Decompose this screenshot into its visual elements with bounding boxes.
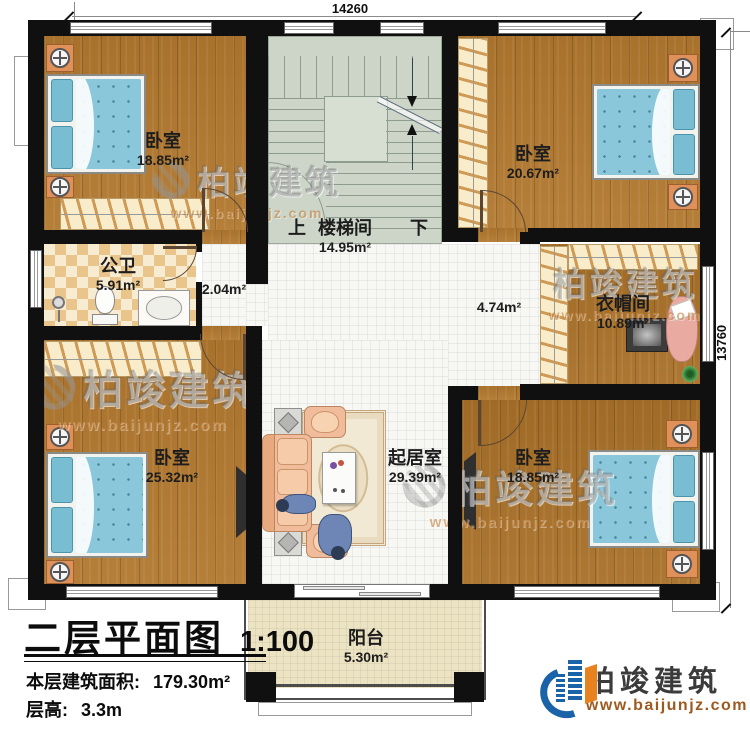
wall-bedroom-tr-bottom-a xyxy=(458,228,478,242)
floor-height-value: 3.3m xyxy=(81,700,122,720)
room-label-stair: 楼梯间 14.95m² xyxy=(300,218,390,256)
room-area: 25.32m² xyxy=(146,469,198,486)
room-label-balcony: 阳台 5.30m² xyxy=(330,628,402,666)
lamp-icon xyxy=(50,562,70,582)
window-bottom-bedroom-bl xyxy=(66,586,218,598)
nightstand xyxy=(46,424,74,450)
bathroom-vanity xyxy=(138,290,190,326)
room-name: 阳台 xyxy=(348,628,384,649)
room-area: 18.85m² xyxy=(507,469,559,486)
wall-hall-stub xyxy=(246,232,268,284)
lamp-icon xyxy=(50,427,70,447)
window-top-bedroom-tl xyxy=(70,22,212,34)
floor-area-value: 179.30m² xyxy=(153,672,230,692)
balcony-post-left xyxy=(246,672,276,702)
floor-plan: 14260 13760 xyxy=(0,0,750,735)
flower-decor xyxy=(341,489,345,493)
window-top-stair-2 xyxy=(380,22,424,34)
stair-label-down: 下 xyxy=(410,218,428,239)
lamp-icon xyxy=(673,58,693,78)
nightstand xyxy=(668,54,698,82)
room-name: 卧室 xyxy=(154,448,190,469)
room-area: 29.39m² xyxy=(389,469,441,486)
pillows xyxy=(51,457,73,553)
wall-cloak-bottom-b xyxy=(530,384,716,400)
room-label-bedroom-bl: 卧室 25.32m² xyxy=(122,448,222,486)
flower-decor xyxy=(333,488,337,492)
extension-line-top-right xyxy=(730,31,750,32)
shower-stem xyxy=(58,310,60,322)
room-label-bathroom: 公卫 5.91m² xyxy=(86,256,150,294)
room-name: 公卫 xyxy=(100,256,136,277)
room-area: 20.67m² xyxy=(507,165,559,182)
armchair xyxy=(304,406,346,438)
wall-bedroom-bl-right xyxy=(246,326,262,584)
wall-bedroom-br-top xyxy=(448,386,478,400)
nightstand xyxy=(666,420,698,448)
wall-exterior-left xyxy=(28,20,44,600)
logo-building-orange xyxy=(585,664,597,704)
room-name: 衣帽间 xyxy=(596,294,650,315)
dimension-top-value: 14260 xyxy=(310,1,390,16)
room-area: 14.95m² xyxy=(319,239,371,256)
sofa-cushion xyxy=(277,438,308,465)
balcony-post-right xyxy=(454,672,484,702)
pillows xyxy=(51,79,73,169)
pillows xyxy=(673,455,695,543)
sofa xyxy=(262,434,312,532)
stair-arrow-up-icon xyxy=(407,124,417,135)
balcony-rail-inner xyxy=(276,684,454,687)
title-underline-thin xyxy=(24,661,266,662)
room-name: 卧室 xyxy=(515,448,551,469)
window-right-bedroom-br xyxy=(702,452,714,550)
window-top-stair-1 xyxy=(284,22,334,34)
room-label-bedroom-br: 卧室 18.85m² xyxy=(490,448,576,486)
room-area: 4.74m² xyxy=(477,299,521,316)
window-bottom-bedroom-br xyxy=(514,586,660,598)
brand-text-block: 柏竣建筑 www.baijunjz.com xyxy=(586,667,748,715)
side-table xyxy=(274,528,302,556)
mattress xyxy=(597,89,670,175)
stair-treads-top xyxy=(268,56,442,98)
room-name: 起居室 xyxy=(388,448,442,469)
stair-landing xyxy=(324,96,388,162)
room-name: 楼梯间 xyxy=(318,218,372,239)
dimension-tick xyxy=(721,603,732,614)
armchair-seat xyxy=(311,411,339,433)
room-area: 2.04m² xyxy=(202,281,246,298)
stair-arrow-down-icon xyxy=(407,96,417,107)
nightstand xyxy=(46,176,74,198)
wardrobe-cloakroom-top xyxy=(568,244,698,270)
wall-stair-left xyxy=(246,20,268,232)
brand-logo: 柏竣建筑 www.baijunjz.com xyxy=(540,654,748,728)
lamp-icon xyxy=(50,177,70,197)
nightstand xyxy=(46,560,74,584)
floor-height-line: 层高: 3.3m xyxy=(26,696,122,722)
side-table xyxy=(274,408,302,436)
sofa-cushion xyxy=(277,469,308,496)
title-underline-thick xyxy=(24,654,266,657)
sink-icon xyxy=(146,296,182,319)
room-label-bedroom-tl: 卧室 18.85m² xyxy=(108,131,218,169)
floor-area-label: 本层建筑面积: xyxy=(26,672,140,692)
dimension-line-top xyxy=(72,16,638,17)
lamp-icon xyxy=(673,187,693,207)
bed-bottom-right xyxy=(588,450,700,548)
flower-decor xyxy=(330,462,337,469)
area-label-hall-small: 2.04m² xyxy=(198,281,250,298)
tv-bedroom-bottom-left xyxy=(236,466,246,538)
floor-area-line: 本层建筑面积: 179.30m² xyxy=(26,668,230,694)
wardrobe-bedroom-bottom-left xyxy=(44,341,202,377)
area-label-hall-main: 4.74m² xyxy=(472,299,526,316)
tv-bedroom-bottom-right xyxy=(464,452,476,530)
window-left-bathroom xyxy=(30,250,42,308)
room-label-bedroom-tr: 卧室 20.67m² xyxy=(478,144,588,182)
flower-decor xyxy=(338,460,344,466)
room-area: 18.85m² xyxy=(137,152,189,169)
balcony-rail-right xyxy=(484,600,486,700)
lamp-icon xyxy=(50,48,70,68)
stair-arrow-line-up xyxy=(412,58,413,98)
mattress xyxy=(593,455,670,543)
stair-arrow-line-down xyxy=(412,136,413,170)
sofa-back xyxy=(263,435,275,531)
stair-treads-left xyxy=(268,98,326,160)
dimension-line-right xyxy=(730,30,731,608)
person-head xyxy=(276,499,289,512)
room-name: 卧室 xyxy=(515,144,551,165)
balcony-rail-bottom xyxy=(244,698,486,700)
room-label-living: 起居室 29.39m² xyxy=(372,448,458,486)
sliding-panel xyxy=(359,592,421,596)
brand-url: www.baijunjz.com xyxy=(586,697,748,715)
balcony-step-outline xyxy=(258,702,472,716)
window-top-bedroom-tr xyxy=(498,22,606,34)
floor-height-label: 层高: xyxy=(26,700,68,720)
toilet-tank xyxy=(92,314,118,325)
brand-name: 柏竣建筑 xyxy=(586,667,748,697)
bed-top-right xyxy=(592,84,700,180)
pillows xyxy=(673,89,695,175)
wall-cloak-bottom-a xyxy=(520,384,530,400)
lamp-icon xyxy=(672,554,692,574)
shower-head-icon xyxy=(52,296,65,309)
room-area: 5.30m² xyxy=(344,649,388,666)
window-right-cloakroom xyxy=(702,266,714,362)
lamp-icon xyxy=(672,424,692,444)
wall-bath-bottom xyxy=(28,326,202,340)
nightstand xyxy=(668,184,698,210)
logo-building-blue xyxy=(568,660,582,702)
person-head xyxy=(331,546,345,560)
sliding-panel xyxy=(303,586,365,590)
plant-icon xyxy=(682,366,698,382)
room-area: 10.89m² xyxy=(597,315,649,332)
room-area: 5.91m² xyxy=(96,277,140,294)
floor-doorway xyxy=(202,230,246,244)
logo-building-small xyxy=(556,674,565,704)
sliding-door-balcony xyxy=(294,584,430,598)
wall-living-right xyxy=(448,400,462,584)
room-name: 卧室 xyxy=(145,131,181,152)
wall-cloak-left-stub xyxy=(520,232,540,244)
wall-bedroom-tr-bottom-b xyxy=(528,228,716,242)
nightstand xyxy=(46,44,74,72)
wardrobe-bedroom-top-left xyxy=(60,198,210,230)
wardrobe-cloakroom-left xyxy=(540,246,568,384)
stair-down-text: 下 xyxy=(410,218,428,239)
nightstand xyxy=(666,550,698,578)
brand-logo-icon xyxy=(540,658,576,724)
room-label-cloakroom: 衣帽间 10.89m² xyxy=(578,294,668,332)
wall-bedroom-tl-bottom xyxy=(28,230,202,244)
dimension-right-value: 13760 xyxy=(714,308,729,378)
wall-stair-right xyxy=(442,20,458,242)
